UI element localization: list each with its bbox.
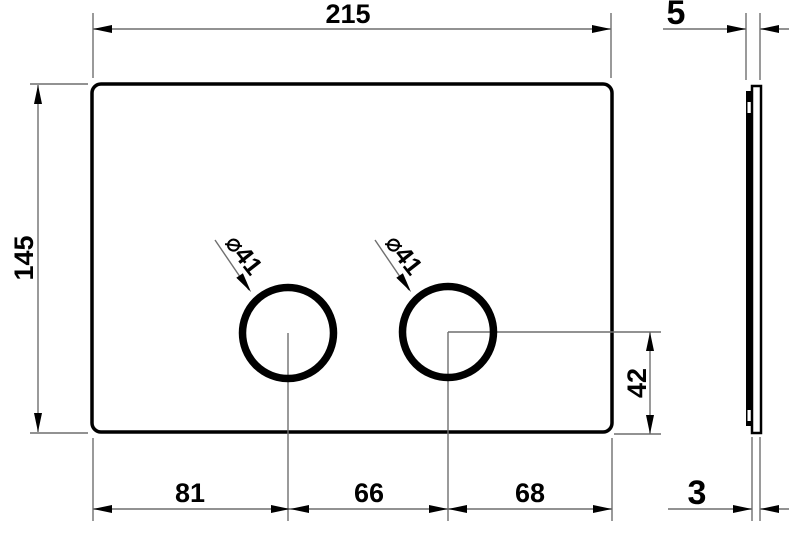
- arrowhead: [592, 25, 611, 33]
- dim-hole-offset: 42: [614, 332, 661, 434]
- arrowhead: [593, 505, 612, 513]
- arrowhead: [760, 505, 779, 513]
- panel-outline: [92, 84, 612, 432]
- arrowhead: [290, 505, 309, 513]
- arrowhead: [727, 25, 746, 33]
- dim-bottom-center-label: 66: [354, 478, 384, 508]
- dim-height: 145: [9, 84, 88, 433]
- dim-bottom-left: 81: [93, 438, 290, 521]
- arrowhead: [733, 505, 752, 513]
- arrowhead: [760, 25, 779, 33]
- dim-thickness-plate: 3: [668, 437, 789, 521]
- dim-bottom-left-label: 81: [175, 478, 205, 508]
- dim-thickness-total-label: 5: [667, 0, 686, 32]
- dim-thickness-plate-label: 3: [688, 474, 707, 512]
- arrowhead: [448, 505, 467, 513]
- front-view: [92, 84, 661, 521]
- dim-width-label: 215: [325, 0, 370, 29]
- side-view-plate-profile: [752, 86, 761, 433]
- arrowhead: [646, 332, 654, 351]
- arrowhead: [34, 85, 42, 104]
- arrowhead: [34, 413, 42, 432]
- arrowhead: [93, 505, 112, 513]
- dim-hole-offset-label: 42: [622, 368, 652, 398]
- dim-width: 215: [93, 0, 611, 78]
- arrowhead: [93, 25, 112, 33]
- dim-bottom-center: 66: [290, 478, 448, 513]
- dim-bottom-right: 68: [448, 438, 612, 521]
- dim-thickness-total: 5: [663, 0, 789, 80]
- arrowhead: [271, 505, 290, 513]
- technical-drawing: 215 145 81 66 68 42: [0, 0, 800, 533]
- dim-bottom-right-label: 68: [515, 478, 545, 508]
- arrowhead: [646, 415, 654, 434]
- side-view: [746, 86, 761, 433]
- dim-height-label: 145: [9, 235, 39, 280]
- arrowhead: [429, 505, 448, 513]
